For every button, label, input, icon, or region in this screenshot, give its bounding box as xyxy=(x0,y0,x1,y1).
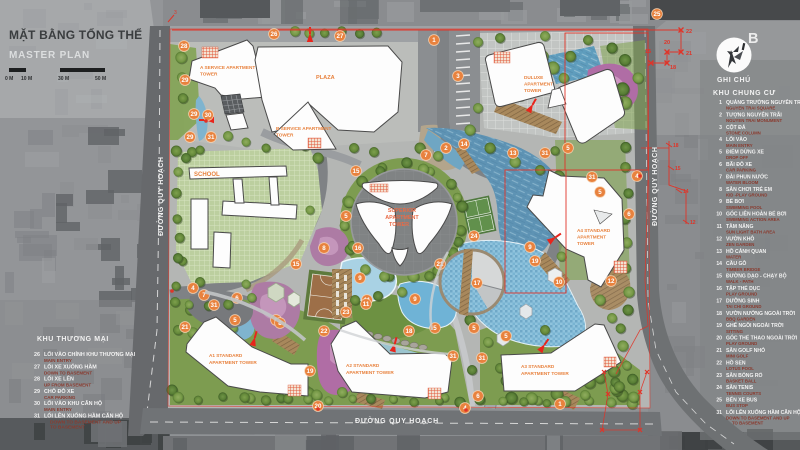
svg-text:16: 16 xyxy=(716,286,722,292)
svg-text:5: 5 xyxy=(344,213,348,220)
svg-text:MẶT BẰNG TỔNG THỂ: MẶT BẰNG TỔNG THỂ xyxy=(9,27,142,42)
svg-text:23: 23 xyxy=(343,309,350,316)
svg-text:1: 1 xyxy=(558,401,562,408)
svg-text:WATER BLOOM: WATER BLOOM xyxy=(726,180,759,185)
svg-text:LOTUS POOL: LOTUS POOL xyxy=(726,366,754,371)
svg-text:MINI GOLF: MINI GOLF xyxy=(726,354,749,359)
svg-text:DULUXE: DULUXE xyxy=(524,75,543,80)
svg-text:18: 18 xyxy=(673,143,679,149)
svg-text:25: 25 xyxy=(716,398,722,404)
svg-text:TOWER: TOWER xyxy=(200,72,218,77)
svg-text:14: 14 xyxy=(461,141,468,148)
svg-text:10: 10 xyxy=(556,279,563,286)
svg-text:7: 7 xyxy=(719,174,722,180)
svg-text:27: 27 xyxy=(34,364,40,370)
svg-text:APARTMENT TOWER: APARTMENT TOWER xyxy=(209,360,257,365)
svg-text:MAIN ENTRY: MAIN ENTRY xyxy=(44,358,72,363)
svg-text:TAI CHI GROUND: TAI CHI GROUND xyxy=(726,304,762,309)
svg-text:5: 5 xyxy=(504,333,508,340)
svg-text:22: 22 xyxy=(686,29,692,35)
svg-text:A3 STANDARD: A3 STANDARD xyxy=(521,364,555,369)
svg-text:A1 STANDARD: A1 STANDARD xyxy=(209,353,243,358)
svg-text:5: 5 xyxy=(472,325,476,332)
svg-text:NGUYEN TRAI SQUARE: NGUYEN TRAI SQUARE xyxy=(726,106,775,111)
svg-text:BUS STOP: BUS STOP xyxy=(726,403,748,408)
svg-text:9: 9 xyxy=(358,275,362,282)
svg-text:3: 3 xyxy=(719,125,722,131)
svg-text:DOWN TO BASEMENT: DOWN TO BASEMENT xyxy=(44,370,92,375)
svg-text:5: 5 xyxy=(566,145,570,152)
svg-text:4: 4 xyxy=(191,285,195,292)
svg-text:19: 19 xyxy=(716,323,722,329)
svg-text:APARTMENT: APARTMENT xyxy=(524,82,553,87)
svg-text:4: 4 xyxy=(719,137,722,143)
svg-text:8: 8 xyxy=(322,245,326,252)
svg-text:KID -PLAY GROUND: KID -PLAY GROUND xyxy=(726,192,767,197)
svg-text:LỐI XE XUỐNG HẦM: LỐI XE XUỐNG HẦM xyxy=(44,363,97,370)
svg-text:30: 30 xyxy=(34,401,40,407)
svg-text:B: B xyxy=(748,31,758,47)
svg-text:SUN LIGHT BATH AREA: SUN LIGHT BATH AREA xyxy=(726,230,775,235)
svg-text:GHI CHÚ: GHI CHÚ xyxy=(717,75,751,84)
svg-text:18: 18 xyxy=(716,311,722,317)
svg-text:9: 9 xyxy=(719,199,722,205)
svg-text:KHU CHUNG CƯ: KHU CHUNG CƯ xyxy=(713,90,776,97)
svg-text:31: 31 xyxy=(211,302,218,309)
svg-text:26: 26 xyxy=(34,352,40,358)
svg-text:9: 9 xyxy=(528,244,532,251)
svg-text:31: 31 xyxy=(542,150,549,157)
svg-text:18: 18 xyxy=(670,65,676,71)
svg-text:PLAY GROUND: PLAY GROUND xyxy=(726,341,757,346)
svg-text:13: 13 xyxy=(510,150,517,157)
svg-text:DROP OFF: DROP OFF xyxy=(726,155,748,160)
svg-text:19: 19 xyxy=(307,368,314,375)
svg-text:29: 29 xyxy=(191,111,198,118)
svg-text:LỐI VÀO KHU CĂN HỘ: LỐI VÀO KHU CĂN HỘ xyxy=(44,399,102,407)
svg-text:24: 24 xyxy=(716,385,722,391)
svg-text:29: 29 xyxy=(187,134,194,141)
svg-text:CAR PARKING: CAR PARKING xyxy=(726,168,757,173)
svg-text:12: 12 xyxy=(608,278,615,285)
svg-text:29: 29 xyxy=(34,389,40,395)
svg-text:WATER: WATER xyxy=(726,254,742,259)
svg-text:2: 2 xyxy=(444,145,448,152)
svg-text:MAIN ENTRY: MAIN ENTRY xyxy=(726,143,753,148)
svg-text:31: 31 xyxy=(450,353,457,360)
svg-text:27: 27 xyxy=(337,33,344,40)
svg-text:TOWER: TOWER xyxy=(577,241,595,246)
svg-text:30: 30 xyxy=(205,112,212,119)
svg-text:TIMBER BRIDGE: TIMBER BRIDGE xyxy=(726,267,761,272)
svg-text:20: 20 xyxy=(664,40,670,46)
svg-text:18: 18 xyxy=(406,328,413,335)
svg-text:6: 6 xyxy=(719,162,722,168)
svg-text:NGUYEN TRAI MONUMENT: NGUYEN TRAI MONUMENT xyxy=(726,118,782,123)
svg-text:28: 28 xyxy=(181,43,188,50)
svg-text:ĐƯỜNG QUY HOẠCH: ĐƯỜNG QUY HOẠCH xyxy=(355,416,439,425)
svg-text:31: 31 xyxy=(208,134,215,141)
svg-text:15: 15 xyxy=(675,166,681,172)
svg-text:ĐƯỜNG QUY HOẠCH: ĐƯỜNG QUY HOẠCH xyxy=(650,147,659,226)
svg-text:1: 1 xyxy=(719,100,722,106)
svg-text:23: 23 xyxy=(716,373,722,379)
svg-text:15: 15 xyxy=(353,168,360,175)
svg-text:BBQ GARDEN: BBQ GARDEN xyxy=(726,316,755,321)
svg-text:5: 5 xyxy=(433,325,437,332)
svg-text:SCHOOL: SCHOOL xyxy=(194,172,220,178)
svg-text:17: 17 xyxy=(716,298,722,304)
svg-text:A SERVICE APARTMENT: A SERVICE APARTMENT xyxy=(200,65,255,70)
svg-text:LỐI VÀO CHÍNH KHU THƯƠNG MẠI: LỐI VÀO CHÍNH KHU THƯƠNG MẠI xyxy=(44,350,136,358)
svg-text:25: 25 xyxy=(654,11,661,18)
svg-text:31: 31 xyxy=(34,414,40,420)
svg-text:24: 24 xyxy=(471,233,478,240)
svg-text:TO BASEMENT: TO BASEMENT xyxy=(732,421,764,426)
svg-text:PLAY GROUND: PLAY GROUND xyxy=(726,292,757,297)
svg-text:26: 26 xyxy=(271,31,278,38)
svg-text:31: 31 xyxy=(479,355,486,362)
svg-text:SWIMMING POOL: SWIMMING POOL xyxy=(726,205,763,210)
svg-text:12: 12 xyxy=(716,236,722,242)
svg-text:ĐƯỜNG QUY HOẠCH: ĐƯỜNG QUY HOẠCH xyxy=(156,157,165,236)
svg-text:KHU THƯƠNG MẠI: KHU THƯƠNG MẠI xyxy=(37,336,109,343)
svg-text:21: 21 xyxy=(182,324,189,331)
svg-text:29: 29 xyxy=(182,77,189,84)
svg-text:APARTMENT TOWER: APARTMENT TOWER xyxy=(346,370,394,375)
svg-text:SITTING: SITTING xyxy=(726,329,744,334)
svg-text:30 M: 30 M xyxy=(58,76,69,82)
svg-text:WALK - PATH: WALK - PATH xyxy=(726,279,754,284)
svg-text:21: 21 xyxy=(686,51,692,57)
svg-text:B SERVICE APARTMENT: B SERVICE APARTMENT xyxy=(276,126,332,131)
svg-text:SWIMMING ACTION AREA: SWIMMING ACTION AREA xyxy=(726,217,780,222)
svg-text:31: 31 xyxy=(716,410,722,416)
svg-text:8: 8 xyxy=(719,187,722,193)
svg-text:13: 13 xyxy=(716,249,722,255)
svg-text:3: 3 xyxy=(174,10,177,16)
svg-text:TOWER: TOWER xyxy=(389,222,409,228)
svg-text:6: 6 xyxy=(476,393,480,400)
svg-text:11: 11 xyxy=(363,301,370,308)
svg-text:5: 5 xyxy=(233,317,237,324)
svg-text:6: 6 xyxy=(627,211,631,218)
svg-text:15: 15 xyxy=(716,274,722,280)
svg-text:22: 22 xyxy=(321,328,328,335)
svg-text:7: 7 xyxy=(424,152,428,159)
svg-text:TOWER: TOWER xyxy=(524,88,542,93)
svg-text:ZEN GARDEN: ZEN GARDEN xyxy=(726,242,754,247)
svg-text:14: 14 xyxy=(716,261,722,267)
svg-text:A4 STANDARD: A4 STANDARD xyxy=(577,228,611,233)
svg-text:BASKET BALL: BASKET BALL xyxy=(726,378,757,383)
svg-text:APARTMENT TOWER: APARTMENT TOWER xyxy=(521,371,569,376)
svg-text:APARTMENT: APARTMENT xyxy=(385,215,419,221)
svg-text:MAIN ENTRY: MAIN ENTRY xyxy=(44,407,72,412)
svg-text:22: 22 xyxy=(716,360,722,366)
svg-text:STONE COLUMN: STONE COLUMN xyxy=(726,130,761,135)
svg-text:20: 20 xyxy=(716,336,722,342)
svg-text:UP FROM BASEMENT: UP FROM BASEMENT xyxy=(44,383,91,388)
svg-text:14: 14 xyxy=(683,189,689,195)
svg-text:15: 15 xyxy=(645,49,651,55)
svg-text:28: 28 xyxy=(34,377,40,383)
svg-text:16: 16 xyxy=(355,245,362,252)
svg-text:2: 2 xyxy=(719,112,722,118)
svg-text:3: 3 xyxy=(456,73,460,80)
svg-text:CAR PARKING: CAR PARKING xyxy=(44,395,76,400)
svg-text:TOWER: TOWER xyxy=(276,133,294,138)
svg-text:5: 5 xyxy=(598,189,602,196)
svg-text:9: 9 xyxy=(413,296,417,303)
svg-text:17: 17 xyxy=(474,280,481,287)
svg-text:LỐI XE LÊN: LỐI XE LÊN xyxy=(44,375,74,383)
svg-text:21: 21 xyxy=(716,348,722,354)
svg-text:SUPERIOR: SUPERIOR xyxy=(388,208,416,214)
svg-text:CHỖ ĐỖ XE: CHỖ ĐỖ XE xyxy=(44,388,75,395)
svg-text:A2 STANDARD: A2 STANDARD xyxy=(346,363,380,368)
svg-text:10: 10 xyxy=(716,212,722,218)
svg-text:1: 1 xyxy=(432,37,436,44)
svg-text:12: 12 xyxy=(690,220,696,226)
svg-text:TO BASEMENT: TO BASEMENT xyxy=(50,425,85,431)
svg-text:APARTMENT: APARTMENT xyxy=(577,235,606,240)
svg-text:19: 19 xyxy=(532,258,539,265)
svg-text:50 M: 50 M xyxy=(95,76,106,82)
svg-text:31: 31 xyxy=(589,174,596,181)
svg-text:TENNIS COURTS: TENNIS COURTS xyxy=(726,391,761,396)
svg-text:15: 15 xyxy=(293,261,300,268)
svg-text:PLAZA: PLAZA xyxy=(316,75,335,81)
svg-text:MASTER PLAN: MASTER PLAN xyxy=(9,50,90,61)
svg-text:10 M: 10 M xyxy=(21,76,32,82)
svg-text:0 M: 0 M xyxy=(5,76,13,82)
svg-text:11: 11 xyxy=(717,224,723,230)
svg-text:LỐI LÊN XUỐNG HẦM CĂN HỘ: LỐI LÊN XUỐNG HẦM CĂN HỘ xyxy=(44,412,123,420)
svg-text:5: 5 xyxy=(719,150,722,156)
